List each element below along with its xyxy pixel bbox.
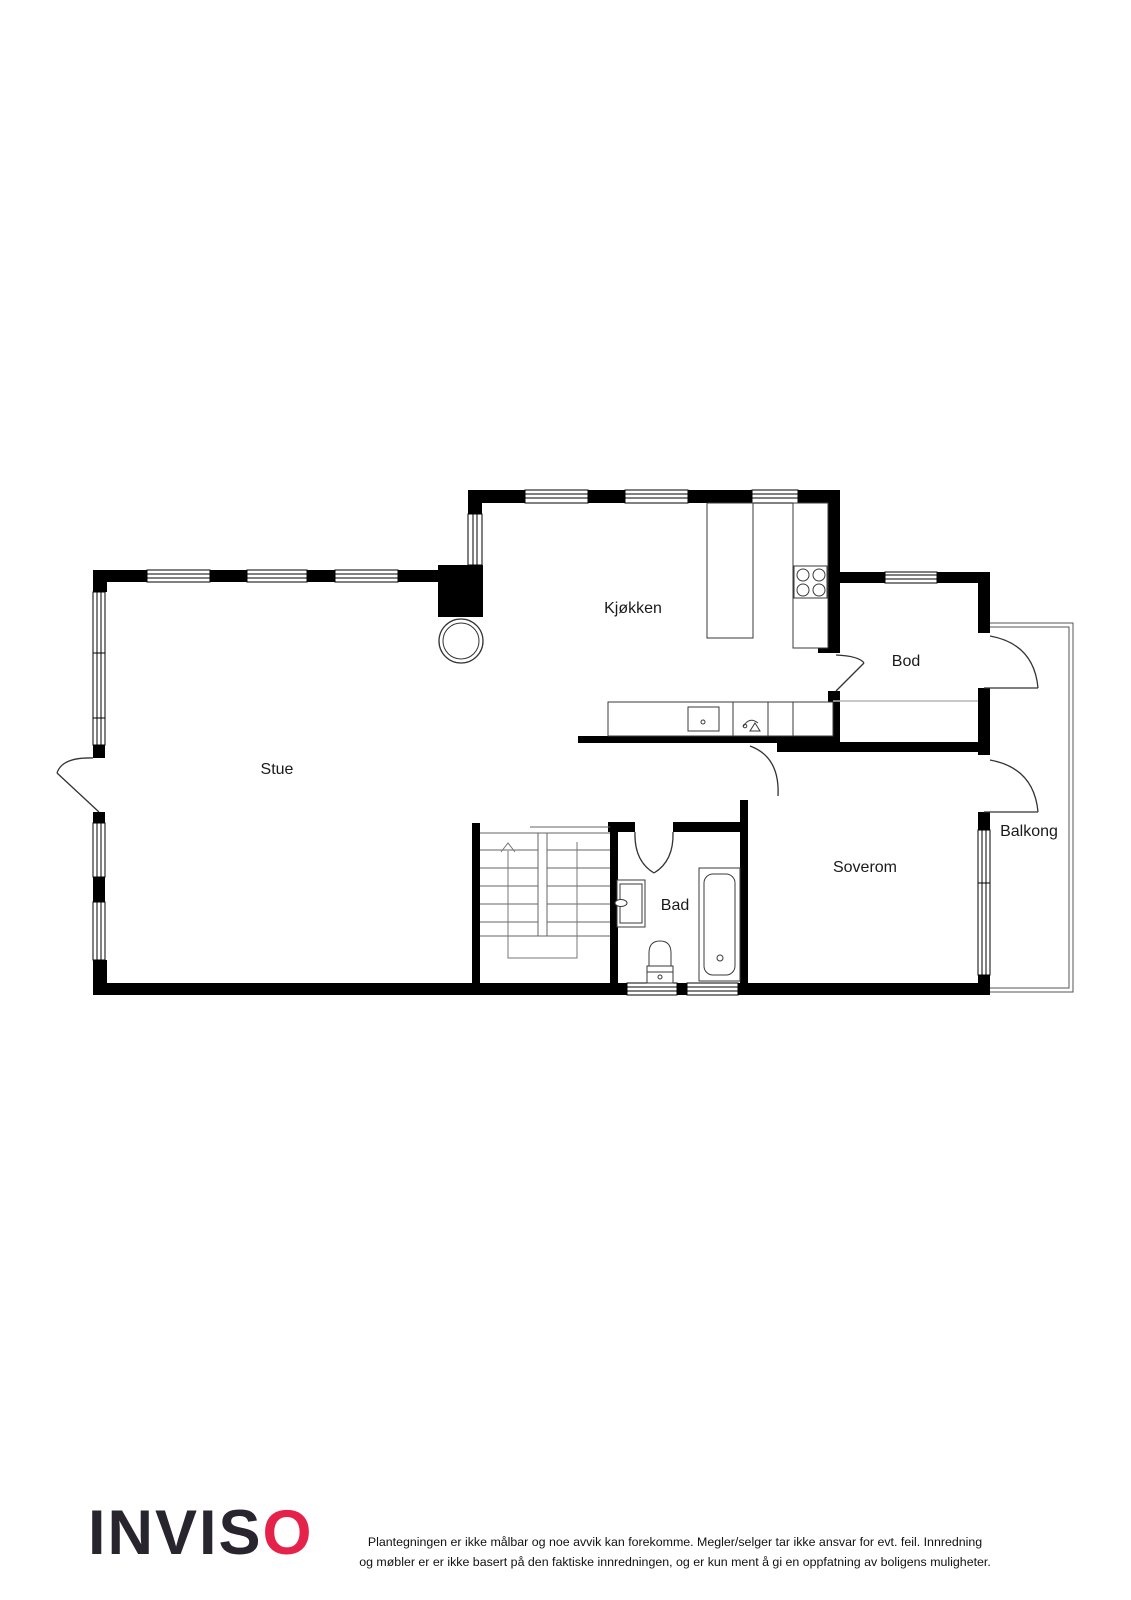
door-stue-west: [57, 758, 99, 812]
door-arc: [635, 832, 654, 873]
inviso-logo: INVISO: [88, 1502, 314, 1564]
door-arc: [990, 760, 1038, 812]
chimney-wall-mass: [438, 565, 483, 617]
door-bad: [635, 832, 673, 873]
room-label-bod: Bod: [892, 653, 920, 670]
window: [978, 830, 990, 883]
window: [525, 490, 588, 503]
window: [147, 570, 210, 582]
room-label-kjokken: Kjøkken: [604, 600, 662, 617]
window: [978, 883, 990, 975]
window: [752, 490, 798, 503]
chimney: [439, 619, 483, 663]
wall: [738, 983, 990, 995]
window: [885, 572, 937, 583]
footer: INVISO Plantegningen er ikke målbar og n…: [0, 1496, 1131, 1586]
wall: [677, 983, 687, 995]
window: [627, 983, 677, 995]
kitchen-counter: [608, 702, 833, 736]
wall-soverom-north: [777, 742, 990, 752]
door-soverom-balcony: [984, 760, 1038, 812]
wall: [978, 812, 990, 830]
window: [93, 902, 105, 960]
stove-burner: [797, 584, 809, 596]
bathtub-drain: [717, 955, 723, 961]
toilet-flush-button: [658, 975, 662, 979]
wall: [307, 570, 335, 582]
disclaimer-line-1: Plantegningen er ikke målbar og noe avvi…: [350, 1532, 1000, 1552]
stove-burner: [813, 584, 825, 596]
stairs-up-arrow-icon: [501, 843, 515, 852]
room-label-stue: Stue: [261, 761, 294, 778]
door-arc: [990, 636, 1038, 688]
door-leaf: [57, 773, 99, 812]
room-label-soverom: Soverom: [833, 859, 897, 876]
wall-stairs-west: [472, 823, 480, 992]
room-label-bad: Bad: [661, 897, 689, 914]
floor-plan-svg: Stue Kjøkken Bod Soverom Bad Balkong: [0, 0, 1131, 1600]
logo-text-black: INVIS: [88, 1498, 263, 1568]
kitchen-island: [707, 503, 753, 638]
disclaimer-line-2: og møbler er er ikke basert på den fakti…: [350, 1552, 1000, 1572]
door-leaf: [836, 663, 864, 691]
wall: [840, 572, 885, 583]
room-label-balkong: Balkong: [1000, 823, 1058, 840]
stair-stringer: [538, 833, 547, 936]
wall-kitchen-counter: [578, 736, 833, 743]
balcony-outline: [990, 623, 1073, 992]
window: [468, 514, 482, 565]
window: [93, 592, 105, 745]
door-arc: [57, 758, 93, 773]
wall: [93, 812, 105, 823]
door-arc: [750, 746, 778, 796]
disclaimer: Plantegningen er ikke målbar og noe avvi…: [350, 1532, 1000, 1572]
wall-bad-east: [740, 800, 748, 985]
kitchen-sink-drain: [701, 720, 705, 724]
door-soverom-entry: [750, 746, 778, 796]
toilet-bowl: [649, 941, 671, 966]
bathroom-sink-faucet: [615, 900, 627, 907]
wall: [93, 745, 105, 758]
room-labels: Stue Kjøkken Bod Soverom Bad Balkong: [261, 600, 1058, 914]
window: [687, 983, 738, 995]
window: [93, 823, 105, 877]
wall-bad-north-right: [673, 822, 748, 832]
door-arc: [836, 655, 864, 663]
wall: [93, 877, 105, 902]
door-kitchen-bod: [836, 655, 864, 691]
kitchen-sink: [688, 707, 719, 731]
wall: [588, 490, 625, 503]
wall: [93, 570, 107, 592]
wall: [828, 490, 840, 640]
wall: [688, 490, 752, 503]
wall: [937, 572, 990, 583]
wall: [398, 570, 438, 582]
kitchen-fixtures: [608, 503, 833, 736]
door-bod-balcony: [984, 636, 1038, 688]
wall: [210, 570, 247, 582]
wall: [978, 975, 990, 995]
logo-letter-o: O: [263, 1498, 314, 1568]
window: [335, 570, 398, 582]
window: [247, 570, 307, 582]
wall: [468, 490, 525, 503]
wall: [93, 983, 627, 995]
staircase: [480, 827, 610, 958]
stove-burner: [813, 569, 825, 581]
bathroom-fixtures: [615, 868, 740, 983]
window: [625, 490, 688, 503]
stove-burner: [797, 569, 809, 581]
wall: [978, 583, 990, 633]
door-arc: [654, 832, 673, 873]
